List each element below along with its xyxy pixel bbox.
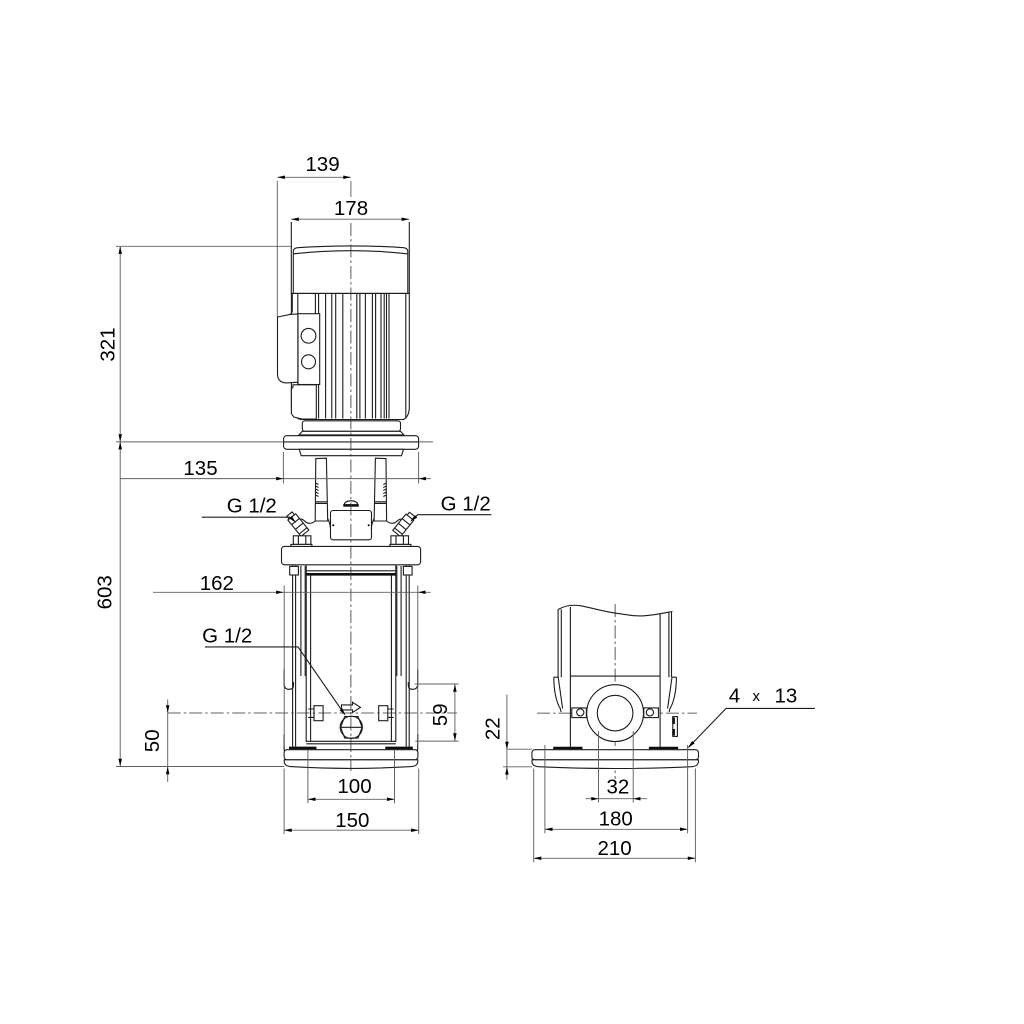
svg-text:4: 4 [729,684,740,707]
svg-text:22: 22 [482,717,505,740]
svg-text:50: 50 [141,729,164,752]
svg-text:100: 100 [337,775,371,798]
svg-text:G 1/2: G 1/2 [202,624,252,647]
svg-text:180: 180 [599,807,633,830]
svg-text:603: 603 [94,575,117,609]
svg-text:321: 321 [96,327,119,361]
svg-text:178: 178 [334,197,368,220]
svg-text:59: 59 [429,703,452,726]
svg-text:162: 162 [200,572,234,595]
svg-text:32: 32 [606,776,629,799]
svg-text:135: 135 [183,457,217,480]
svg-text:13: 13 [775,684,798,707]
svg-text:G 1/2: G 1/2 [441,492,491,515]
svg-text:x: x [753,688,761,705]
svg-text:G 1/2: G 1/2 [227,495,277,518]
svg-text:139: 139 [305,153,339,176]
svg-text:150: 150 [335,809,369,832]
svg-text:210: 210 [597,837,631,860]
